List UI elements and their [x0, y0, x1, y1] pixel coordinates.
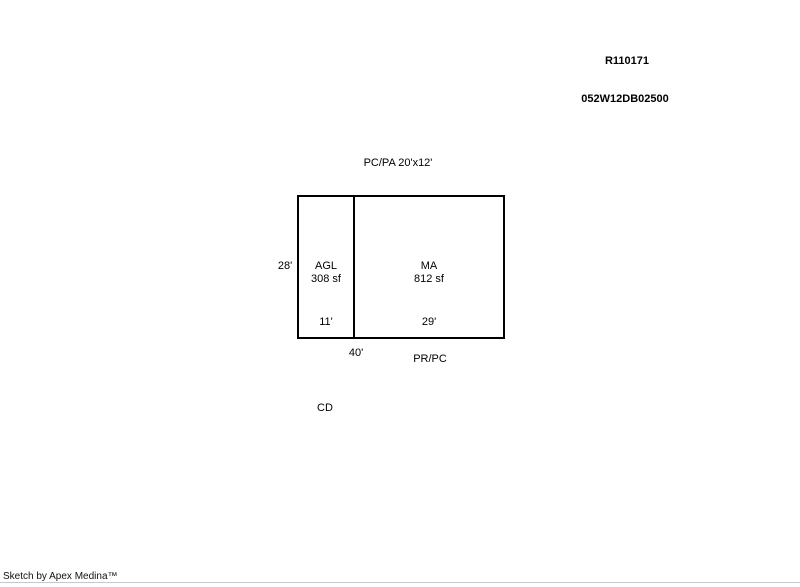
area-ma-label: MA 812 sf	[355, 260, 503, 286]
record-id: R110171	[605, 55, 649, 68]
building-footprint-outline: AGL 308 sf MA 812 sf 11' 29'	[297, 195, 505, 339]
detached-structure-label: CD	[317, 402, 333, 415]
footer-divider-line	[0, 582, 800, 583]
porch-label: PR/PC	[413, 353, 447, 366]
area-ma-size: 812 sf	[355, 273, 503, 286]
area-agl-code: AGL	[299, 260, 353, 273]
dimension-agl-width: 11'	[299, 316, 353, 329]
area-agl-label: AGL 308 sf	[299, 260, 353, 286]
dimension-bottom-width: 40'	[349, 347, 363, 360]
property-sketch-page: R110171 052W12DB02500 PC/PA 20'x12' AGL …	[0, 0, 800, 587]
dimension-left-height: 28'	[278, 260, 292, 273]
porch-patio-label: PC/PA 20'x12'	[364, 157, 433, 170]
dimension-ma-width: 29'	[355, 316, 503, 329]
area-ma-code: MA	[355, 260, 503, 273]
sketch-credit: Sketch by Apex Medina™	[3, 571, 118, 583]
parcel-id: 052W12DB02500	[581, 93, 668, 106]
area-agl-size: 308 sf	[299, 273, 353, 286]
